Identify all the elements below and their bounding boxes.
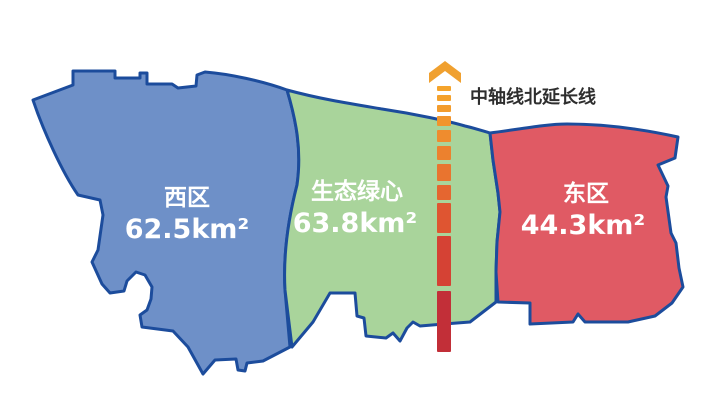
axis-dash-segment: [437, 146, 451, 160]
axis-dash-segment: [437, 291, 451, 352]
map-canvas: 中轴线北延长线 西区 62.5km² 生态绿心 63.8km² 东区 44.3k…: [0, 0, 718, 407]
district-map: 中轴线北延长线 西区 62.5km² 生态绿心 63.8km² 东区 44.3k…: [0, 0, 718, 407]
center-region-name: 生态绿心: [311, 178, 403, 205]
axis-dash-segment: [437, 130, 451, 142]
axis-dash-segment: [437, 164, 451, 181]
west-region-area: 62.5km²: [125, 214, 250, 245]
axis-dash-segment: [437, 86, 451, 91]
east-region-name: 东区: [563, 180, 609, 207]
east-region-area: 44.3km²: [521, 210, 646, 241]
axis-dash-segment: [437, 95, 451, 101]
axis-dash-segment: [437, 203, 451, 233]
arrow-up-icon: [429, 61, 461, 83]
center-region-area: 63.8km²: [293, 208, 418, 239]
axis-dash-segment: [437, 116, 451, 126]
axis-label: 中轴线北延长线: [470, 86, 596, 108]
central-axis-line: [437, 86, 451, 352]
axis-dash-segment: [437, 236, 451, 286]
axis-dash-segment: [437, 185, 451, 200]
west-region-name: 西区: [164, 185, 210, 211]
axis-dash-segment: [437, 105, 451, 112]
